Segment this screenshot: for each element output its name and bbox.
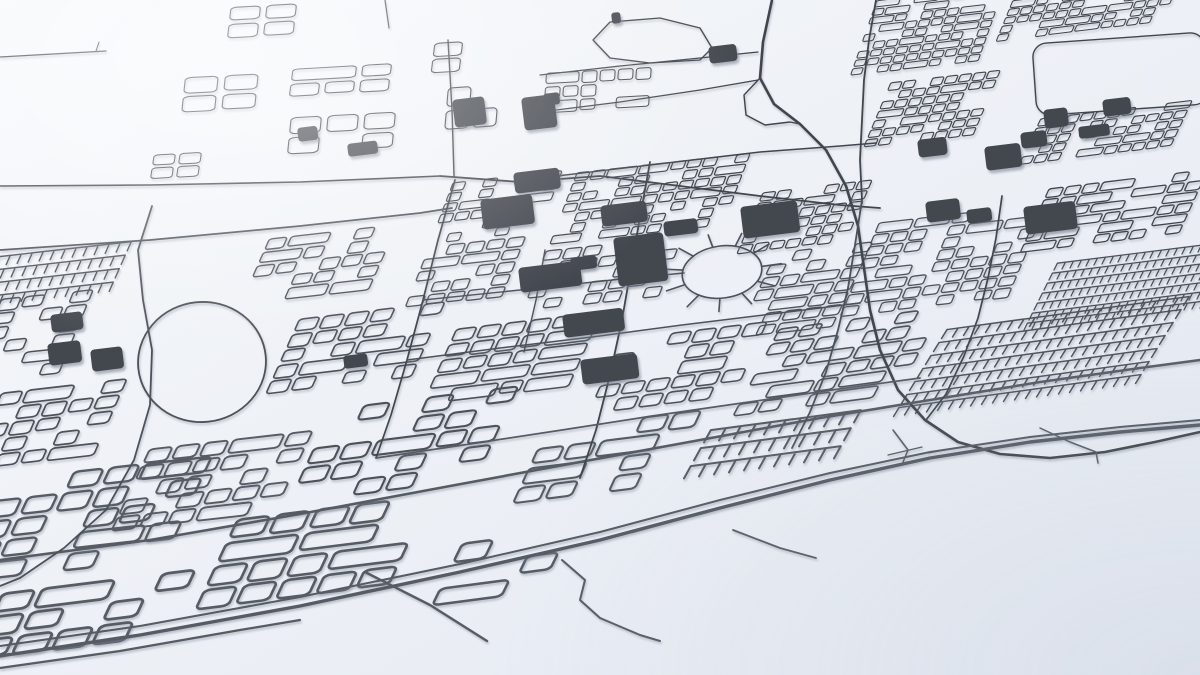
map-artwork: [0, 0, 1200, 675]
city-map-3d-render: [0, 0, 1200, 675]
paper-background: [0, 0, 1200, 675]
